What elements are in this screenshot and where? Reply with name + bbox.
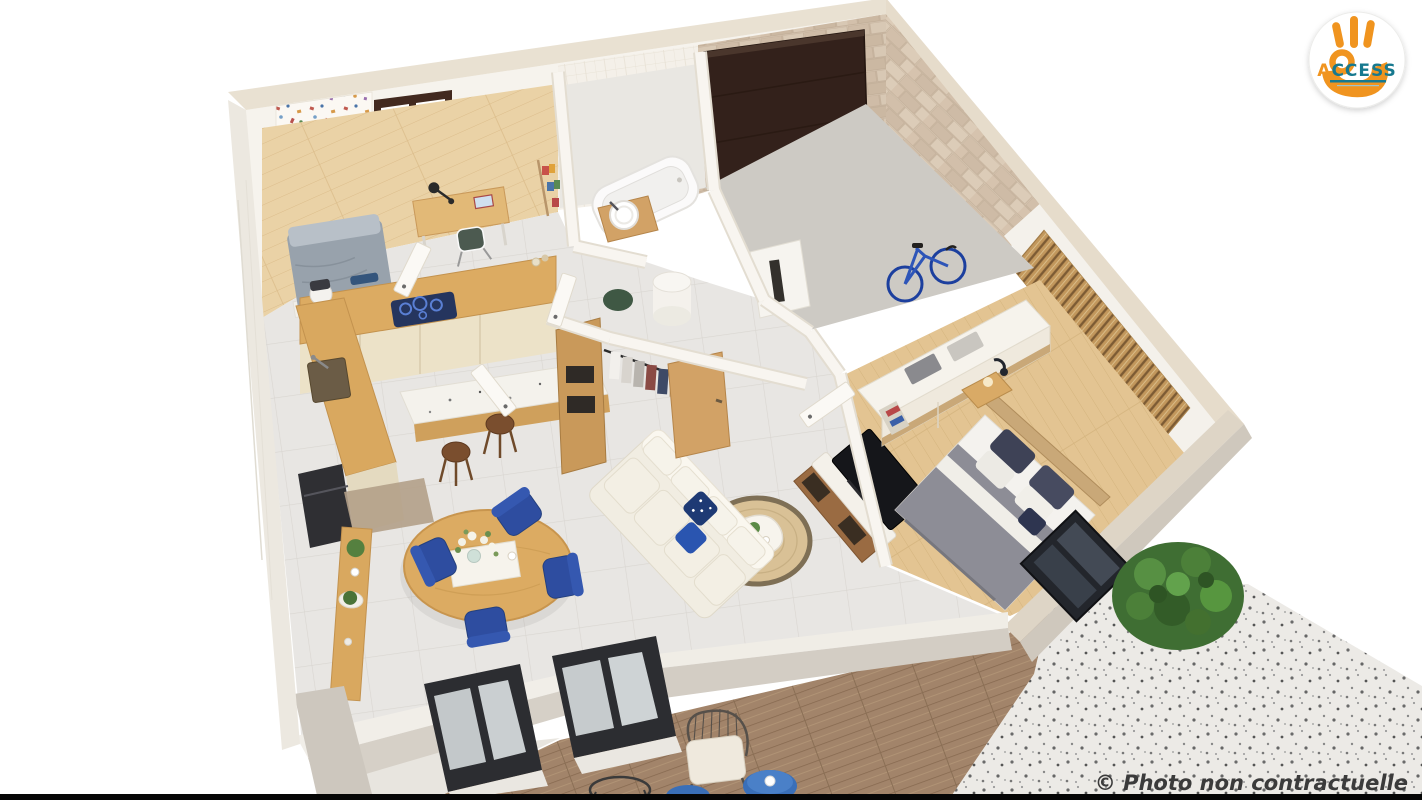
logo-underline-2 [1337,85,1379,86]
logo-text: ACCESS [1317,61,1396,81]
floor-plan-render: ACCESS © Photo non contractuelle [0,0,1422,800]
logo: ACCESS [1309,12,1405,108]
water-heater [653,272,691,326]
dining-chair [541,552,584,602]
vessel-sink [610,201,638,229]
jar [532,258,540,266]
bush-plant [1112,542,1244,650]
floor-plan-svg: ACCESS © Photo non contractuelle [0,0,1422,800]
caption: © Photo non contractuelle [1095,771,1408,795]
jar [542,255,549,262]
logo-underline [1330,80,1386,83]
dining-chair [462,605,512,648]
logo-text-first: A [1317,61,1331,81]
cup [508,552,516,560]
laundry-cushion [603,289,633,311]
bottom-bar [0,794,1422,800]
logo-text-rest: CCESS [1331,61,1396,81]
